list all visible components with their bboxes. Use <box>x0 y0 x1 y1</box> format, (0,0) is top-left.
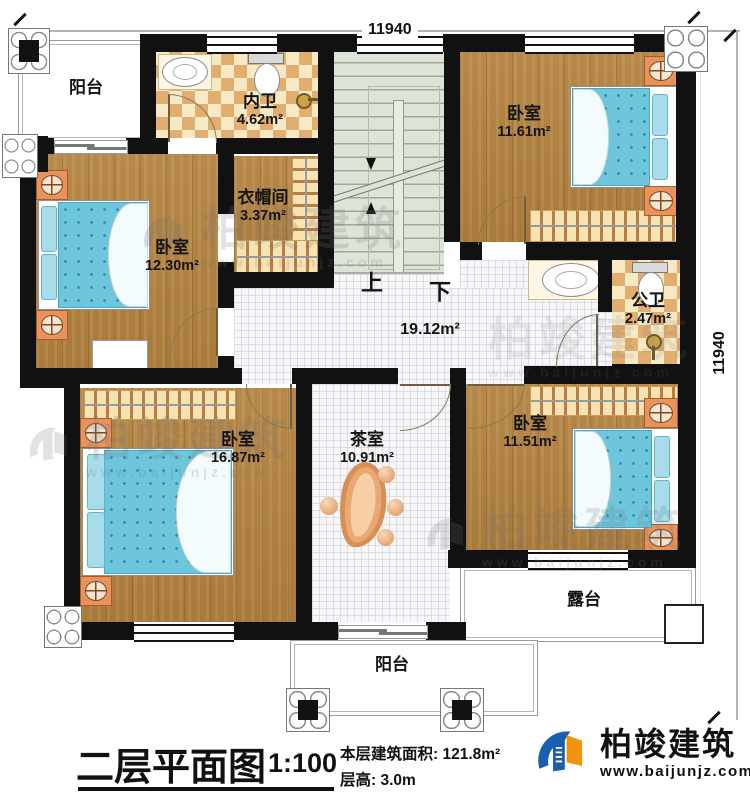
brand-name: 柏竣建筑 <box>600 727 750 762</box>
cloakroom-rack <box>292 158 320 244</box>
stair-arrow-up <box>366 202 376 214</box>
sink-icon <box>162 57 208 87</box>
stair-rail <box>393 100 404 274</box>
wall <box>628 550 678 568</box>
room-label-cloakroom: 衣帽间 3.37m² <box>238 188 289 224</box>
wall <box>296 368 312 624</box>
extension-line <box>700 50 701 640</box>
pillow <box>87 454 105 510</box>
dim-label-right: 11940 <box>711 325 729 381</box>
window <box>528 552 628 570</box>
wardrobe-bedroom-bottom-left <box>84 390 236 420</box>
window <box>525 36 634 54</box>
wall <box>444 50 460 242</box>
cloakroom-rack-bottom <box>236 240 318 274</box>
bed-blanket <box>108 203 148 307</box>
column-symbol <box>286 688 330 732</box>
cushion <box>378 466 395 483</box>
brand-url: www.baijunjz.com <box>600 763 750 780</box>
wall <box>140 46 156 152</box>
pillow <box>41 206 57 252</box>
wall <box>524 366 696 384</box>
pillow <box>654 480 670 522</box>
room-label-hall: 19.12m² <box>400 321 460 339</box>
room-label-bedroom-left: 卧室 12.30m² <box>145 238 199 274</box>
column-symbol <box>664 26 708 72</box>
room-label-balcony-top: 阳台 <box>69 78 103 98</box>
wall <box>426 622 466 640</box>
cushion <box>387 499 404 516</box>
pillow <box>87 512 105 568</box>
room-label-bath-inner: 内卫 4.62m² <box>237 92 283 128</box>
pillow <box>652 94 668 136</box>
shower-icon <box>296 93 312 109</box>
column-symbol <box>664 604 704 644</box>
wall <box>526 242 696 260</box>
hall-floor-under-stairs <box>332 274 444 288</box>
dim-label-top: 11940 <box>362 21 418 39</box>
room-label-bedroom-top-right: 卧室 11.61m² <box>497 104 550 140</box>
dim-tick <box>13 13 26 26</box>
shower-stem <box>652 346 655 360</box>
cushion <box>320 497 338 515</box>
dim-tick <box>707 711 720 724</box>
title-underline <box>78 787 334 791</box>
wall <box>216 138 334 154</box>
sliding-door <box>54 140 128 154</box>
nightstand <box>644 398 678 428</box>
nightstand <box>36 310 68 340</box>
page-title: 二层平面图 <box>76 736 266 791</box>
floor-area-text: 本层建筑面积: 121.8m² <box>340 742 500 764</box>
wall <box>64 372 80 640</box>
floor-height-text: 层高: 3.0m <box>340 768 416 790</box>
pillow <box>41 254 57 300</box>
dim-line-right <box>736 30 738 720</box>
column-symbol <box>44 606 82 648</box>
storage-box <box>92 340 148 370</box>
wall <box>20 368 242 384</box>
nightstand <box>644 524 678 552</box>
pillow <box>652 138 668 180</box>
room-label-bedroom-bottom-left: 卧室 16.87m² <box>211 430 265 466</box>
room-label-tea-room: 茶室 10.91m² <box>340 430 394 466</box>
stair-arrow-down <box>366 158 376 170</box>
cushion <box>377 529 394 546</box>
brand-logo-icon <box>534 727 592 785</box>
column-symbol <box>2 134 38 178</box>
scale-label: 1:100 <box>268 748 337 779</box>
dim-tick <box>687 11 700 24</box>
bed-blanket <box>176 451 231 573</box>
room-label-bedroom-bottom-right: 卧室 11.51m² <box>503 414 556 450</box>
wall <box>140 138 168 154</box>
brand-logo: 柏竣建筑 www.baijunjz.com <box>534 727 750 785</box>
wall <box>678 366 696 568</box>
wall <box>318 50 334 288</box>
room-label-bath-public: 公卫 2.47m² <box>625 291 671 327</box>
wall <box>218 272 334 288</box>
hall-floor-door-gap <box>598 312 612 366</box>
wall <box>450 368 466 568</box>
wall <box>277 34 357 52</box>
nightstand <box>644 186 678 216</box>
column-symbol <box>440 688 484 732</box>
stair-label-up: 上 <box>361 270 383 295</box>
wall <box>20 154 36 388</box>
floor-plan: 11940 11940 <box>0 0 750 798</box>
wall <box>234 622 338 640</box>
window <box>134 624 234 642</box>
room-label-balcony-bottom: 阳台 <box>375 655 409 675</box>
stair-edge <box>332 272 444 274</box>
nightstand <box>80 576 112 606</box>
stair-label-down: 下 <box>429 279 451 304</box>
nightstand <box>80 418 112 448</box>
sliding-door <box>338 625 428 639</box>
room-label-terrace: 露台 <box>567 590 601 610</box>
column-symbol <box>8 28 50 74</box>
window <box>207 36 277 54</box>
wall <box>676 50 696 260</box>
wall <box>680 250 696 370</box>
hall-sink-icon <box>542 263 600 297</box>
pillow <box>654 436 670 478</box>
nightstand <box>36 170 68 200</box>
